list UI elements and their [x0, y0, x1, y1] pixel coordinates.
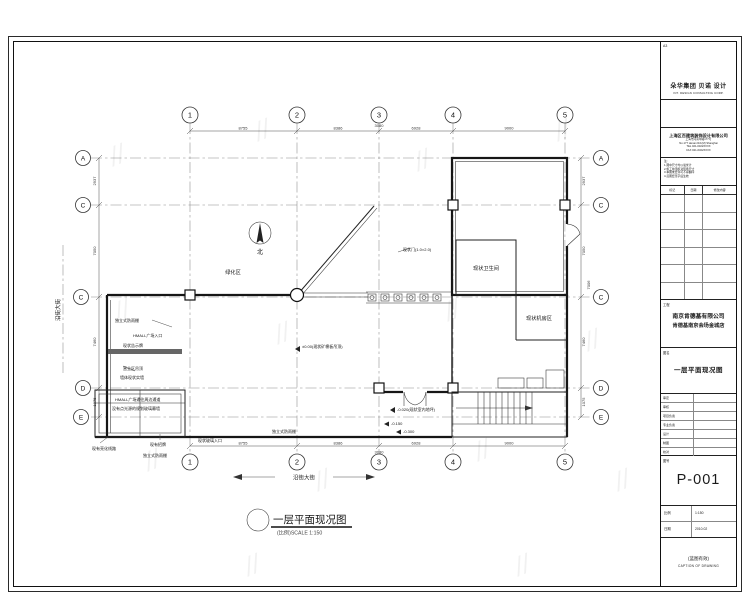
revision-table: 标记 日期 修改内容: [661, 186, 736, 300]
grid-col-label: 2: [295, 111, 299, 120]
revision-row: [661, 230, 736, 248]
dim-right: 7050: [581, 246, 586, 256]
annotation: 没有点光源的规划玻璃幕墙: [112, 405, 160, 411]
rev-col-mark: 标记: [661, 186, 684, 195]
dim-bottom: 9000: [505, 441, 515, 446]
grid-row-label: C: [599, 295, 604, 302]
rev-col-desc: 修改内容: [702, 186, 736, 195]
north-label: 北: [257, 248, 263, 256]
grid-col-label: 3: [377, 111, 381, 120]
grid-col-label: 1: [188, 458, 192, 467]
annotation: HMALL广场通往周边通道: [115, 396, 160, 402]
staff-row: 审核: [661, 403, 736, 412]
grid-bubbles-bottom: 1 2 3 4 5: [182, 454, 573, 470]
walls: [95, 158, 570, 437]
annotation: -0.300: [403, 429, 415, 434]
title-block-footer: (蓝图有效) CAPTION OF DRAWING: [661, 538, 736, 586]
scale-row: 比例 1:150: [661, 506, 736, 522]
annotation: 独立式防雨棚: [143, 452, 167, 458]
dim-top: 6928: [412, 126, 422, 131]
staff-role: 校对: [661, 448, 693, 456]
floor-plan: 1 2 3 4 5 1 2 3 4 5 A C C D E A C C D E: [0, 0, 750, 600]
staff-row: 制图: [661, 439, 736, 448]
dim-bottom: 6928: [412, 441, 422, 446]
date-value: 2010.02: [691, 522, 736, 537]
dim-top-small: 3080: [375, 123, 385, 128]
footer-en: CAPTION OF DRAWING: [678, 564, 719, 568]
annotation: ±0.00(现状矿棉板吊顶): [302, 343, 343, 349]
annotation: 独立式防雨棚: [272, 428, 296, 434]
north-arrow: 北: [249, 222, 271, 256]
staff-role: 设计: [661, 430, 693, 438]
room-labels: 绿化区 现状卫生间 现状机房区: [225, 264, 552, 322]
staff-role: 项目负责: [661, 412, 693, 420]
annotation: -0.150: [391, 421, 403, 426]
revision-row: [661, 213, 736, 231]
staircase: [452, 370, 567, 437]
annotation: 墙体现状实墙: [120, 374, 144, 380]
drawing-sheet-page: // // // // // // // // // // // // // /…: [0, 0, 750, 600]
annotation: -0.020(现状室内地坪): [397, 406, 436, 412]
revision-table-header: 标记 日期 修改内容: [661, 186, 736, 195]
revision-row: [661, 248, 736, 266]
annotation: 现有招牌: [150, 441, 166, 447]
staff-row: 项目负责: [661, 412, 736, 421]
grid-col-label: 3: [377, 458, 381, 467]
grid-row-label: C: [599, 203, 604, 210]
title-block-logo: A3 朵华集团 贝诺 设计 INT. DESIGN CONSULTING COR…: [661, 42, 736, 100]
title-block-spacer: [661, 100, 736, 128]
grid-col-label: 5: [563, 111, 567, 120]
grid-row-label: A: [599, 156, 604, 163]
drawing-name-label: 图名: [663, 350, 734, 355]
street-label-left: 沿街大街: [54, 299, 62, 322]
dim-right: 1075: [581, 397, 586, 407]
grid-col-label: 1: [188, 111, 192, 120]
grid-col-label: 4: [451, 111, 455, 120]
project-label: 工程: [663, 302, 734, 307]
machine-room-label: 现状机房区: [526, 314, 552, 322]
staff-table: 审定 审核 项目负责 专业负责 设计 制图 校对: [661, 394, 736, 456]
grid-bubbles-right: A C C D E: [594, 151, 609, 425]
brand-name-en: INT. DESIGN CONSULTING CORP.: [673, 91, 723, 95]
caption-title: 一层平面现况图: [273, 514, 347, 526]
revision-row: [661, 283, 736, 300]
dim-left: 7050: [92, 246, 97, 256]
firm-fax: FAX 021-6322XXXX: [686, 149, 710, 153]
info-rows: 比例 1:150 日期 2010.02: [661, 506, 736, 538]
notice-board-bar: [108, 349, 182, 354]
left-annex: [95, 349, 185, 437]
street-label: 沿街大街: [293, 474, 316, 482]
grid-row-label: E: [599, 415, 604, 422]
dim-top: 9000: [505, 126, 515, 131]
grid-row-label: D: [81, 386, 86, 393]
scale-label: 比例: [661, 506, 691, 521]
dim-right-extra: 7006: [586, 280, 591, 290]
drawing-number-label: 图号: [663, 458, 669, 463]
sheet-size-label: A3: [663, 44, 667, 48]
project-name: 肯德基南京会场金城店: [663, 322, 734, 329]
project-section: 工程 南京肯德基有限公司 肯德基南京会场金城店: [661, 300, 736, 348]
exterior-door: [567, 224, 580, 246]
caption-scale: (比例)SCALE 1:150: [277, 529, 322, 537]
dimension-lines: [96, 128, 584, 449]
staff-row: 审定: [661, 394, 736, 403]
annotation: 独立式防雨棚: [115, 317, 139, 323]
dim-bottom-small: 3080: [375, 450, 385, 455]
green-area-label: 绿化区: [225, 268, 241, 276]
grid-row-label: D: [599, 386, 604, 393]
annotation: 现状门(1.0×2.0): [403, 246, 432, 252]
staff-role: 专业负责: [661, 421, 693, 429]
annotation: 现有亮化线路: [92, 445, 116, 451]
double-door: [404, 392, 426, 406]
staff-role: 制图: [661, 439, 693, 447]
scale-value: 1:150: [691, 506, 736, 521]
staff-row: 设计: [661, 430, 736, 439]
drawing-name-section: 图名 一层平面现况图: [661, 348, 736, 394]
dim-bottom: 8755: [239, 441, 249, 446]
grid-bubbles-top: 1 2 3 4 5: [182, 107, 573, 123]
date-row: 日期 2010.02: [661, 522, 736, 537]
dim-right: 2937: [581, 176, 586, 186]
revision-row: [661, 265, 736, 283]
annotation: 现状告示牌: [123, 342, 143, 348]
brand-name: 朵华集团 贝诺 设计: [670, 81, 726, 90]
revision-row: [661, 195, 736, 213]
annotation: 营业区吊顶: [123, 365, 143, 371]
annotation: HMALL广场入口: [133, 332, 162, 338]
dim-top: 8755: [239, 126, 249, 131]
dim-top: 8386: [334, 126, 344, 131]
grid-col-label: 2: [295, 458, 299, 467]
staff-role: 审核: [661, 403, 693, 411]
grid-col-label: 4: [451, 458, 455, 467]
dim-left: 7460: [92, 337, 97, 347]
staff-role: 审定: [661, 394, 693, 402]
drawing-number: P-001: [661, 472, 736, 488]
dim-bottom: 8386: [334, 441, 344, 446]
client-name: 南京肯德基有限公司: [663, 311, 734, 320]
title-block: A3 朵华集团 贝诺 设计 INT. DESIGN CONSULTING COR…: [660, 42, 736, 586]
footer-cn: (蓝图有效): [688, 556, 709, 562]
note-line: 4.蓝图经签字后生效: [664, 175, 733, 179]
title-block-firm: 上海区百建筑装饰设计有限公司 上海市河南中路177号 No.177 Henan …: [661, 128, 736, 158]
date-label: 日期: [661, 522, 691, 537]
annotation: 现状玻璃入口: [198, 437, 222, 443]
grid-row-label: A: [81, 156, 86, 163]
title-block-notes: 注: 1.图中尺寸均以毫米计 2.施工前须核对现场尺寸 3.本图未经许可不得翻印…: [661, 158, 736, 186]
dim-left: 2937: [92, 176, 97, 186]
drawing-number-section: 图号 P-001: [661, 456, 736, 506]
grid-row-label: E: [79, 415, 84, 422]
grid-row-label: C: [79, 295, 84, 302]
drawing-title: 一层平面现况图: [663, 364, 734, 374]
grid-col-label: 5: [563, 458, 567, 467]
grid-row-label: C: [81, 203, 86, 210]
dim-right: 7460: [581, 337, 586, 347]
staff-row: 专业负责: [661, 421, 736, 430]
grid-bubbles-left: A C C D E: [74, 151, 91, 425]
toilet-label: 现状卫生间: [473, 264, 499, 272]
rev-col-date: 日期: [684, 186, 703, 195]
staff-row: 校对: [661, 448, 736, 456]
plan-caption: 一层平面现况图 (比例)SCALE 1:150: [247, 509, 352, 537]
